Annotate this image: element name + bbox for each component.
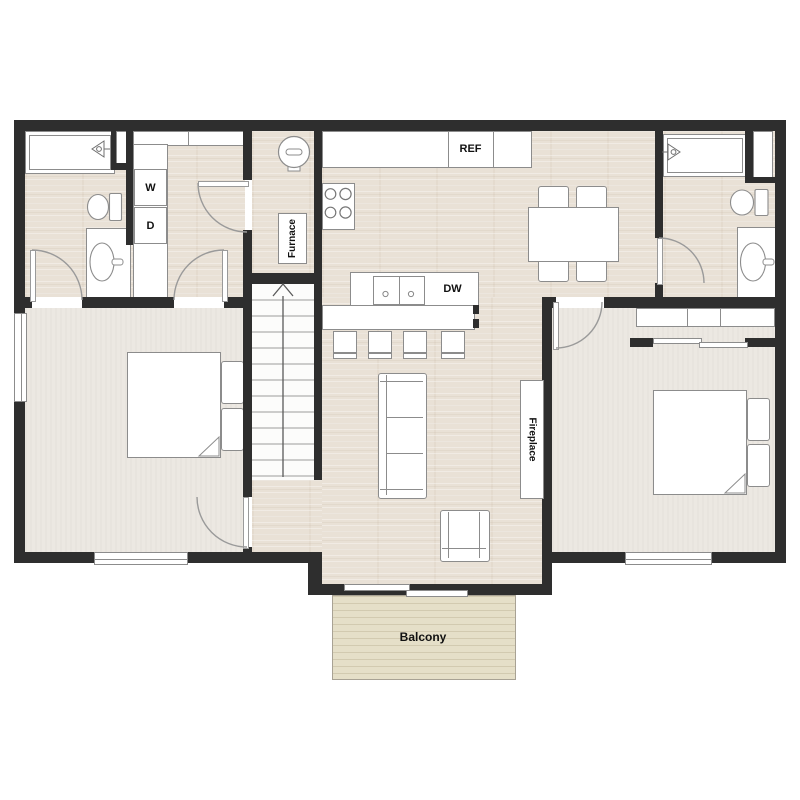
floor-plan: W D Furnace Fireplace — [0, 0, 800, 800]
toilet-1 — [88, 194, 122, 221]
vanity-1-sink — [90, 243, 123, 281]
toilet-2 — [731, 190, 769, 216]
water-heater — [279, 137, 310, 172]
vanity-2-sink — [741, 243, 775, 281]
shower-head-icon — [662, 144, 680, 160]
shower-head-icon — [92, 141, 110, 157]
sink-drains — [383, 291, 414, 296]
bed-blanket-fold — [199, 437, 745, 493]
door-swing-arcs — [32, 183, 704, 547]
stove-burners — [325, 188, 351, 218]
plan-details-overlay — [0, 0, 800, 800]
